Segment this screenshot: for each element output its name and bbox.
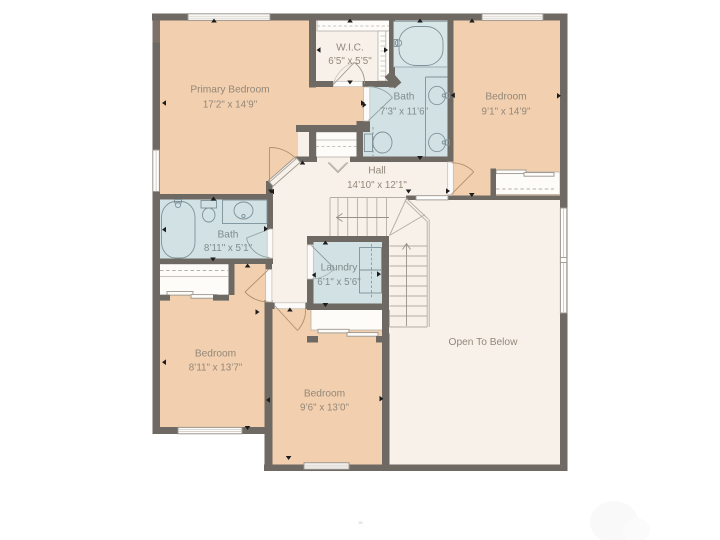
svg-text:8’11" x 5’1": 8’11" x 5’1"	[204, 243, 253, 254]
svg-text:6’1" x 5’6": 6’1" x 5’6"	[317, 277, 361, 288]
svg-text:14’10" x 12’1": 14’10" x 12’1"	[347, 180, 407, 191]
svg-text:Bedroom: Bedroom	[304, 389, 345, 400]
svg-text:17’2" x 14’9": 17’2" x 14’9"	[203, 100, 258, 111]
svg-text:Open To Below: Open To Below	[449, 337, 519, 348]
svg-text:7’3" x 11’6": 7’3" x 11’6"	[380, 107, 429, 118]
svg-text:Bedroom: Bedroom	[485, 92, 526, 103]
svg-text:9’1" x 14’9": 9’1" x 14’9"	[482, 107, 531, 118]
svg-text:8’11" x 13’7": 8’11" x 13’7"	[189, 363, 243, 374]
svg-text:9’6" x 13’0": 9’6" x 13’0"	[300, 403, 349, 414]
svg-text:Bedroom: Bedroom	[195, 349, 236, 360]
svg-text:Hall: Hall	[368, 166, 386, 177]
svg-text:Bath: Bath	[394, 92, 415, 103]
svg-text:6’5" x 5’5": 6’5" x 5’5"	[328, 56, 372, 67]
svg-text:Laundry: Laundry	[321, 263, 359, 274]
svg-text:Primary Bedroom: Primary Bedroom	[190, 85, 269, 96]
svg-text:Bath: Bath	[218, 230, 239, 241]
svg-text:W.I.C.: W.I.C.	[336, 43, 364, 54]
